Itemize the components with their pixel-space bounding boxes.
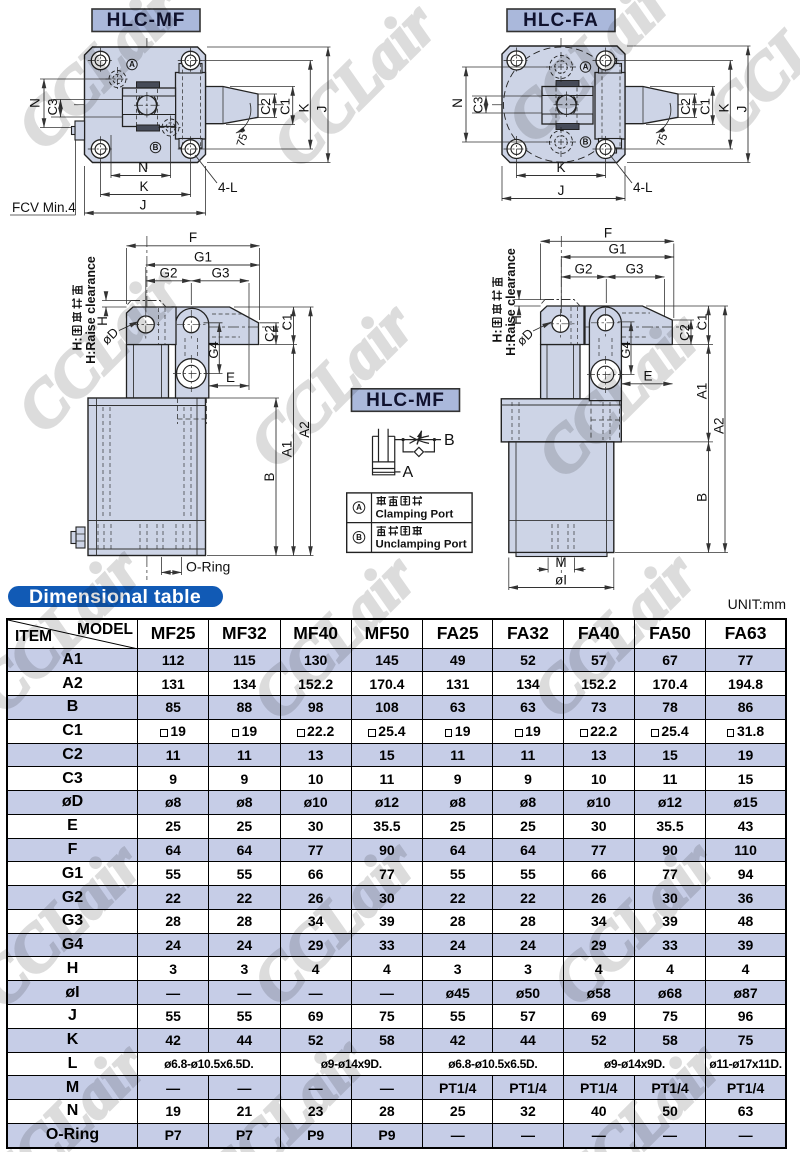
svg-text:A: A [583,63,589,72]
svg-text:Dimensional table: Dimensional table [29,586,201,608]
svg-text:N: N [138,160,148,175]
svg-text:K: K [556,160,565,175]
svg-text:C2: C2 [678,98,693,115]
svg-text:G3: G3 [211,265,229,280]
svg-text:C3: C3 [45,99,60,116]
svg-text:G1: G1 [194,250,212,265]
svg-text:B: B [262,472,277,481]
svg-text:A: A [129,60,135,69]
svg-text:K: K [717,103,732,112]
svg-text:K: K [139,179,148,194]
svg-text:HLC-MF: HLC-MF [107,10,186,31]
svg-text:N: N [450,98,465,108]
svg-text:A: A [403,464,414,481]
svg-text:O-Ring: O-Ring [186,559,230,575]
svg-text:N: N [28,98,43,108]
svg-text:A2: A2 [297,421,312,438]
svg-text:F: F [604,226,612,241]
svg-text:B: B [356,533,362,542]
svg-text:C3: C3 [471,97,486,114]
svg-text:B: B [444,432,455,449]
svg-text:B: B [583,138,589,147]
svg-text:C2: C2 [262,325,277,342]
svg-text:G1: G1 [608,242,626,257]
svg-text:F: F [189,230,197,245]
svg-text:75°: 75° [235,128,252,148]
svg-text:C1: C1 [695,314,710,331]
svg-text:J: J [735,106,750,113]
svg-text:C2: C2 [258,98,273,115]
svg-text:A: A [356,503,362,512]
svg-text:G2: G2 [159,265,177,280]
svg-text:øD: øD [99,325,122,348]
svg-text:B: B [153,143,159,152]
svg-text:H:: H: [71,337,85,350]
svg-text:G3: G3 [625,261,643,276]
svg-text:H:Raise clearance: H:Raise clearance [504,248,518,356]
svg-text:C1: C1 [280,314,295,331]
svg-text:4-L: 4-L [218,180,238,195]
svg-text:E: E [226,370,235,385]
svg-text:A1: A1 [695,383,710,400]
svg-text:UNIT:mm: UNIT:mm [728,596,786,612]
svg-text:J: J [140,198,147,213]
svg-text:Clamping Port: Clamping Port [376,509,454,521]
svg-text:øI: øI [555,573,567,588]
svg-text:H:: H: [491,329,505,342]
svg-text:A1: A1 [280,441,295,458]
svg-text:C1: C1 [698,98,713,115]
svg-text:FCV Min.4: FCV Min.4 [12,200,76,215]
svg-text:75°: 75° [655,128,672,148]
svg-text:A2: A2 [712,418,727,435]
svg-text:C2: C2 [677,324,692,341]
svg-text:K: K [297,103,312,112]
svg-text:HLC-FA: HLC-FA [523,10,599,31]
svg-text:J: J [315,106,330,113]
svg-text:Unclamping Port: Unclamping Port [376,539,467,551]
svg-text:G2: G2 [574,261,592,276]
svg-text:4-L: 4-L [633,180,653,195]
svg-text:G4: G4 [206,341,221,358]
svg-text:H:Raise clearance: H:Raise clearance [84,256,98,364]
svg-text:G4: G4 [618,341,633,358]
svg-text:M: M [555,555,566,570]
svg-text:B: B [695,493,710,502]
svg-text:J: J [558,183,565,198]
svg-text:C1: C1 [278,98,293,115]
svg-text:E: E [643,368,652,383]
svg-text:HLC-MF: HLC-MF [366,390,445,411]
